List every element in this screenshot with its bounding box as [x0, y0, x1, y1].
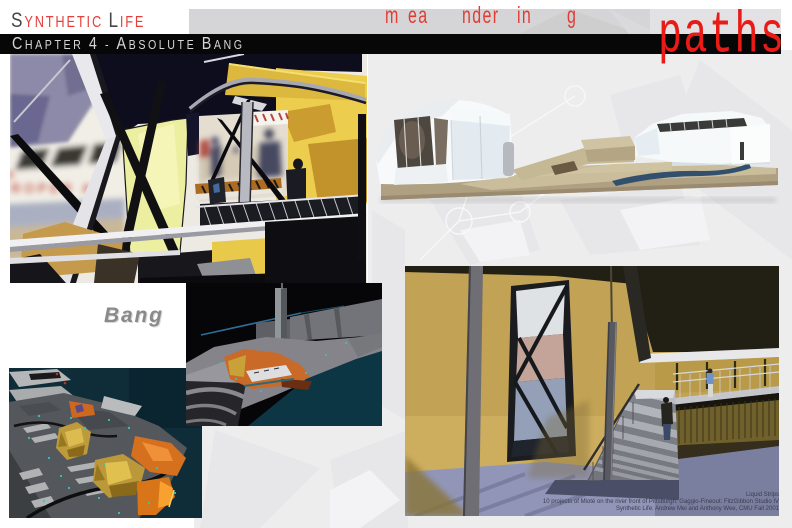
svg-text:E: E — [10, 170, 15, 181]
